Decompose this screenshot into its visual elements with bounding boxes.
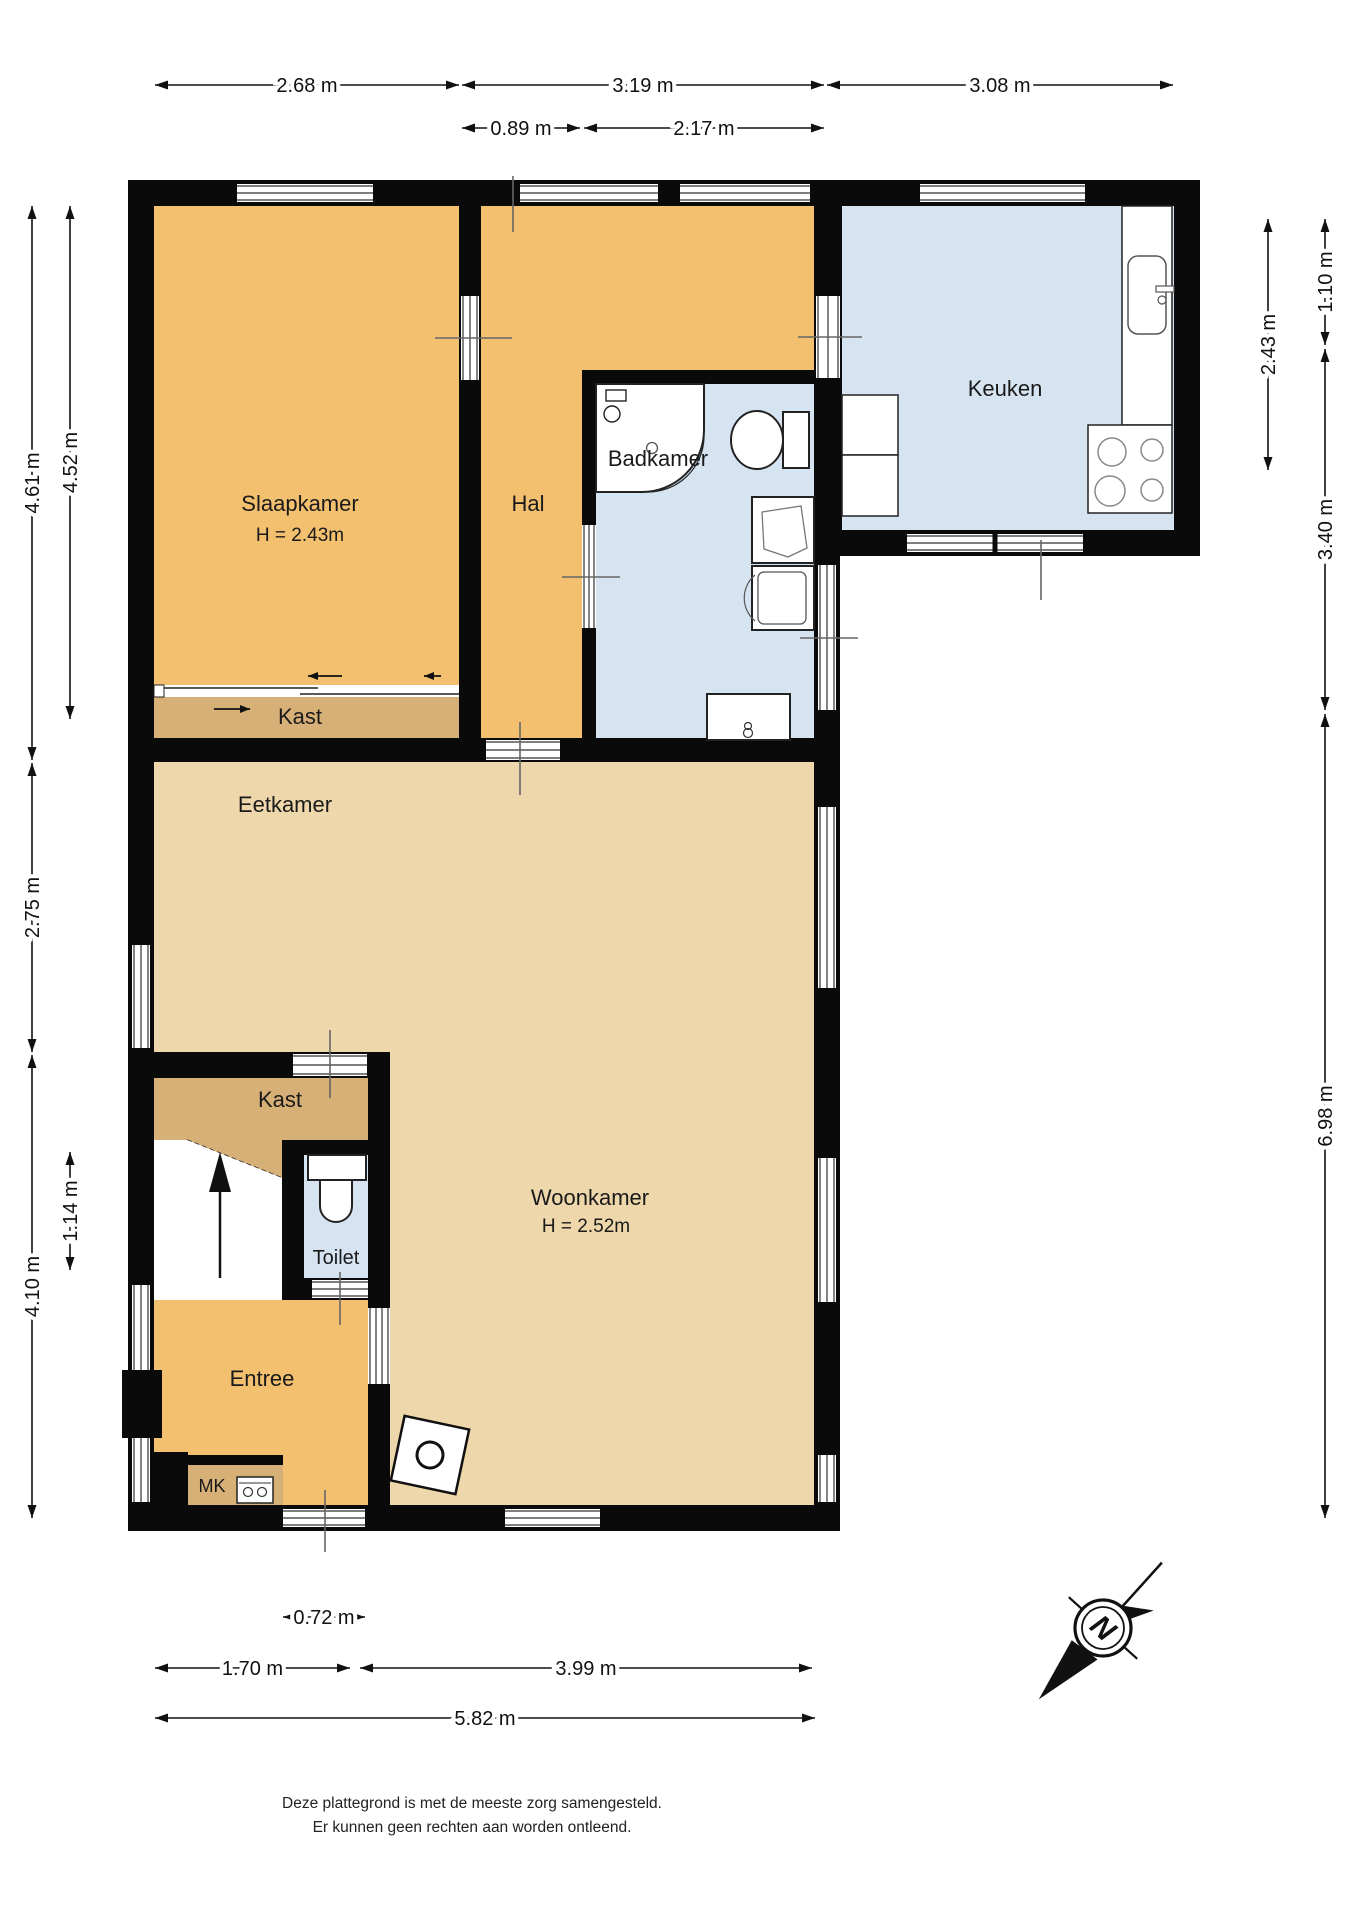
dim-label-top1: 2.68 m <box>276 75 337 97</box>
dim-arrowhead <box>799 1664 812 1673</box>
dim-arrowhead <box>1321 349 1330 362</box>
kitchen-faucet <box>1158 296 1166 304</box>
dim-arrowhead <box>827 81 840 90</box>
toilet-bowl <box>731 411 783 469</box>
dim-arrowhead <box>66 1257 75 1270</box>
dim-arrowhead <box>66 206 75 219</box>
dim-label-bottom1: 0.72 m <box>293 1607 354 1629</box>
dim-label-bottom2: 1.70 m <box>222 1658 283 1680</box>
dim-arrowhead <box>1321 714 1330 727</box>
dim-arrowhead <box>462 81 475 90</box>
room-label-mk: MK <box>199 1476 226 1496</box>
washbasin-bowl <box>762 506 807 557</box>
meter-box <box>237 1477 273 1503</box>
toilet-cistern <box>308 1155 366 1180</box>
toilet-tank <box>783 412 809 468</box>
dim-arrowhead <box>1264 219 1273 232</box>
toilet-bowl <box>320 1180 352 1222</box>
footer-disclaimer-line2: Er kunnen geen rechten aan worden ontlee… <box>313 1819 632 1836</box>
dim-arrowhead <box>802 1714 815 1723</box>
room-label-kast-bedroom: Kast <box>278 704 322 729</box>
dim-arrowhead <box>66 706 75 719</box>
dim-arrowhead <box>811 124 824 133</box>
dim-arrowhead <box>462 124 475 133</box>
wall <box>582 370 842 384</box>
kitchen-sink <box>1128 256 1166 334</box>
dim-arrowhead <box>155 1714 168 1723</box>
shower-head-icon <box>606 390 626 401</box>
sliding-door <box>154 685 459 697</box>
dim-label-bottom4: 5.82 m <box>454 1708 515 1730</box>
fireplace <box>391 1416 469 1494</box>
entree-glass-panel <box>368 1308 390 1384</box>
room-label-hal: Hal <box>511 491 544 516</box>
dim-arrowhead <box>28 1055 37 1068</box>
dim-arrowhead <box>811 81 824 90</box>
room-slaapkamer <box>154 206 459 685</box>
room-label-slaapkamer: Slaapkamer <box>241 491 358 516</box>
dim-arrowhead <box>155 81 168 90</box>
dim-label-top5: 2.17 m <box>673 118 734 140</box>
dim-label-top3: 3.08 m <box>969 75 1030 97</box>
dim-arrowhead <box>66 1152 75 1165</box>
wall <box>122 1370 162 1438</box>
room-label-eetkamer: Eetkamer <box>238 792 332 817</box>
compass-icon: N <box>1005 1532 1196 1730</box>
wall <box>128 738 814 762</box>
dim-label-left1: 4.61 m <box>22 452 44 513</box>
floorplan-page: SlaapkamerH = 2.43mHalBadkamerKeukenKast… <box>0 0 1358 1920</box>
wall <box>368 1052 390 1305</box>
wall <box>368 1384 390 1505</box>
dim-label-top4: 0.89 m <box>490 118 551 140</box>
dim-arrowhead <box>1321 697 1330 710</box>
dim-arrowhead <box>567 124 580 133</box>
dim-label-right2: 1.10 m <box>1315 251 1337 312</box>
dim-label-left2: 4.52 m <box>60 432 82 493</box>
wall <box>282 1140 304 1300</box>
room-label-kast-hall: Kast <box>258 1087 302 1112</box>
sliding-door-end <box>154 685 164 697</box>
dim-arrowhead <box>1321 219 1330 232</box>
dim-arrowhead <box>1264 457 1273 470</box>
wall <box>188 1455 283 1465</box>
dim-label-right3: 3.40 m <box>1315 499 1337 560</box>
dim-arrowhead <box>28 763 37 776</box>
dim-arrowhead <box>1321 332 1330 345</box>
dim-label-left3: 2.75 m <box>22 877 44 938</box>
dim-label-left5: 4.10 m <box>22 1256 44 1317</box>
room-label-toilet: Toilet <box>313 1247 360 1269</box>
dim-arrowhead <box>28 206 37 219</box>
dim-label-right4: 6.98 m <box>1315 1085 1337 1146</box>
room-label-badkamer: Badkamer <box>608 446 708 471</box>
room-label-entree: Entree <box>230 1366 295 1391</box>
room-label-woonkamer: Woonkamer <box>531 1185 649 1210</box>
dim-label-left4: 1.14 m <box>60 1180 82 1241</box>
room-hal <box>481 206 582 745</box>
kitchen-cabinet <box>842 395 898 455</box>
dim-arrowhead <box>337 1664 350 1673</box>
dim-arrowhead <box>155 1664 168 1673</box>
room-height-woonkamer: H = 2.52m <box>542 1216 630 1237</box>
dim-arrowhead <box>1160 81 1173 90</box>
floorplan-canvas: SlaapkamerH = 2.43mHalBadkamerKeukenKast… <box>0 0 1358 1920</box>
dim-arrowhead <box>28 1039 37 1052</box>
wall <box>1174 180 1200 556</box>
dim-arrowhead <box>584 124 597 133</box>
dim-arrowhead <box>360 1664 373 1673</box>
wall <box>459 206 481 762</box>
shower-head-icon <box>604 406 620 422</box>
footer-disclaimer-line1: Deze plattegrond is met de meeste zorg s… <box>282 1795 662 1812</box>
room-hal-strip <box>582 206 842 370</box>
kitchen-cabinet <box>842 455 898 516</box>
room-height-slaapkamer: H = 2.43m <box>256 525 344 546</box>
washing-machine-drum <box>758 572 806 624</box>
dim-arrowhead <box>446 81 459 90</box>
dim-label-right1: 2.43 m <box>1258 314 1280 375</box>
room-label-keuken: Keuken <box>968 376 1043 401</box>
kitchen-stove <box>1088 425 1172 513</box>
dim-label-bottom3: 3.99 m <box>555 1658 616 1680</box>
wall <box>128 1505 840 1531</box>
dim-arrowhead <box>28 1505 37 1518</box>
kitchen-faucet <box>1156 286 1174 292</box>
dim-arrowhead <box>28 747 37 760</box>
dim-arrowhead <box>1321 1505 1330 1518</box>
boiler <box>707 694 790 740</box>
dim-label-top2: 3.19 m <box>612 75 673 97</box>
